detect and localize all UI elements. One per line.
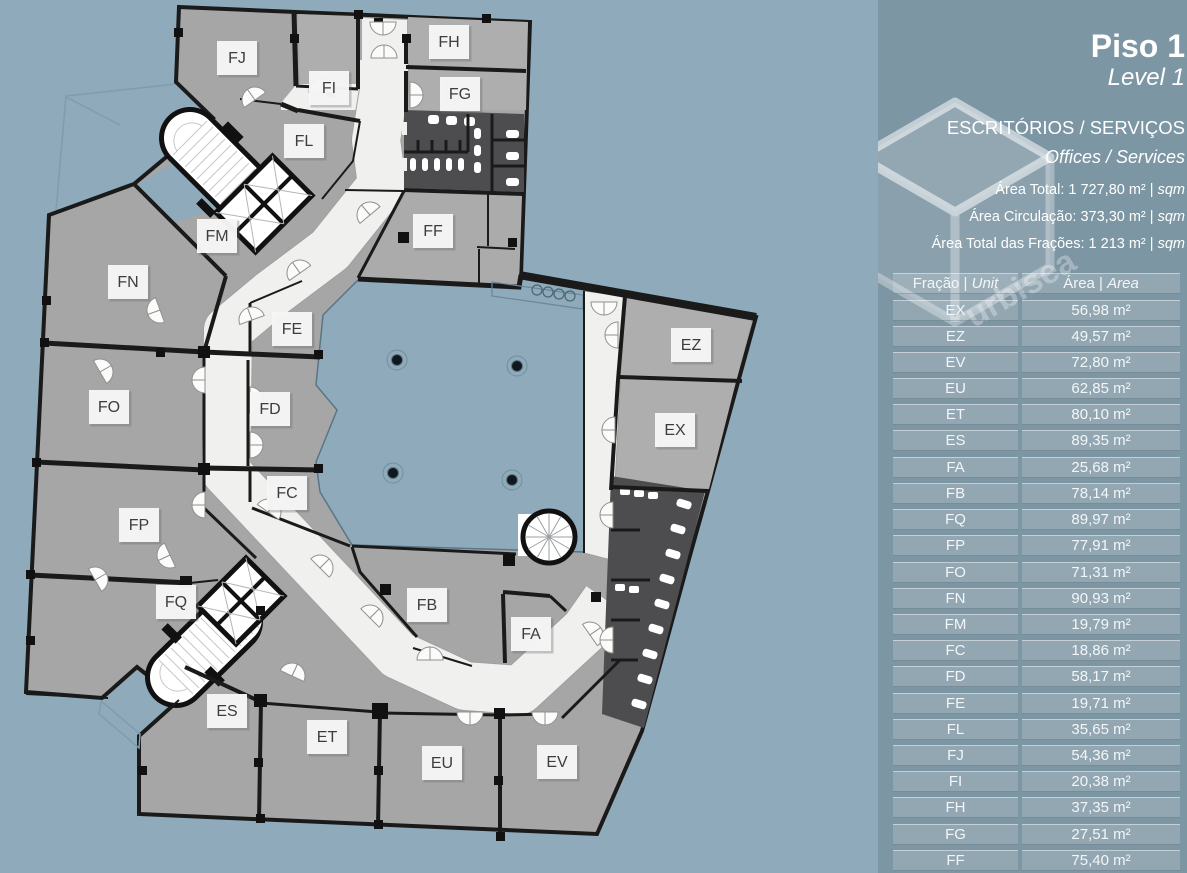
svg-text:EX: EX [664,422,686,439]
svg-text:FF: FF [423,223,443,240]
svg-text:ET: ET [317,729,338,746]
svg-text:FJ: FJ [228,50,246,67]
svg-text:FA: FA [521,626,541,643]
svg-text:FM: FM [205,228,228,245]
svg-text:EV: EV [546,754,568,771]
svg-text:ES: ES [216,703,237,720]
svg-text:EZ: EZ [681,337,702,354]
svg-text:FD: FD [259,401,280,418]
svg-text:FG: FG [449,86,471,103]
svg-text:FB: FB [417,597,437,614]
svg-text:FL: FL [295,133,314,150]
svg-text:FC: FC [276,485,297,502]
svg-text:FI: FI [322,80,336,97]
svg-text:FH: FH [438,34,459,51]
svg-text:FE: FE [282,321,302,338]
svg-text:FQ: FQ [165,594,187,611]
svg-text:FO: FO [98,399,120,416]
svg-text:FN: FN [117,274,138,291]
svg-text:EU: EU [431,755,453,772]
svg-text:FP: FP [129,517,149,534]
